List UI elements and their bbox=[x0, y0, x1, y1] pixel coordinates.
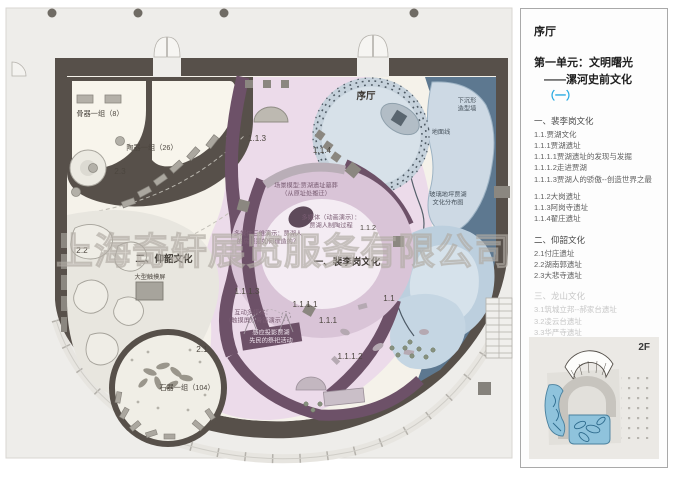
thumbnail-plan bbox=[529, 337, 653, 459]
label-zone-1-1-4: 1.1.4 bbox=[313, 146, 331, 155]
section-title: 三、龙山文化 bbox=[534, 290, 656, 302]
page: 骨器一组（8） 陶器一组（26） 2.3 2.2 二、仰韶文化 大型触摸屏 2.… bbox=[0, 0, 676, 477]
thumb-grid bbox=[621, 375, 649, 439]
section-item: 1.1.3阿岗寺遗址 bbox=[534, 202, 656, 213]
panel-unit-title: 第一单元：文明曙光 ——漯河史前文化（一） bbox=[534, 55, 656, 105]
label-zone-2-3: 2.3 bbox=[114, 167, 125, 176]
label-scene-model: 场景模型:贾湖遗址墓葬 （从原址处搬迁） bbox=[274, 182, 338, 198]
section-item: 2.1付庄遗址 bbox=[534, 248, 656, 259]
panel-hall-title: 序厅 bbox=[534, 23, 656, 39]
info-panel: 序厅 第一单元：文明曙光 ——漯河史前文化（一） 一、裴李岗文化1.1.贾湖文化… bbox=[520, 8, 668, 468]
section-item: 1.1.1.1贾湖遗址的发现与发掘 bbox=[534, 151, 656, 162]
floor-plan: 骨器一组（8） 陶器一组（26） 2.3 2.2 二、仰韶文化 大型触摸屏 2.… bbox=[0, 0, 516, 477]
section-title: 一、裴李岗文化 bbox=[534, 115, 656, 127]
section-item: 1.1.4翟庄遗址 bbox=[534, 213, 656, 224]
touch-screen-box bbox=[136, 282, 163, 300]
label-glass-floor: 玻璃地坪贾湖 文化分布图 bbox=[429, 191, 466, 207]
watermark: 上海奇轩展览服务有限公司 bbox=[56, 221, 518, 275]
panel-section: 二、仰韶文化2.1付庄遗址2.2湖南郭遗址2.3大悲寺遗址 bbox=[534, 234, 656, 282]
label-zone-1-1-1-2: 1.1.1.2 bbox=[337, 352, 362, 361]
label-zone-1-1-3: 1.1.3 bbox=[248, 134, 266, 143]
label-stone-tools: 石器一组（104） bbox=[159, 382, 214, 393]
right-wall-stub bbox=[494, 186, 510, 198]
section-item: 1.1.2大岗遗址 bbox=[534, 191, 656, 202]
section-item: 3.2凌云台遗址 bbox=[534, 316, 656, 327]
label-zone-1-1-1-1: 1.1.1.1 bbox=[292, 300, 317, 309]
unit-subtitle-text: ——漯河史前文化 bbox=[544, 74, 632, 86]
label-ground-line: 地面线 bbox=[432, 126, 451, 135]
section-item: 1.1.1.3贾湖人的骄傲--创造世界之最 bbox=[534, 174, 656, 185]
label-bone-tools: 骨器一组（8） bbox=[76, 108, 123, 119]
label-hall: 序厅 bbox=[356, 88, 375, 102]
label-zone-1-1: 1.1 bbox=[383, 294, 394, 303]
label-zone-1-1-1-3: 1.1.1.3 bbox=[234, 287, 259, 296]
section-item: 3.1筑城立邦--郝家台遗址 bbox=[534, 304, 656, 315]
label-pottery: 陶器一组（26） bbox=[126, 142, 177, 153]
panel-sections: 一、裴李岗文化1.1.贾湖文化1.1.1贾湖遗址1.1.1.1贾湖遗址的发现与发… bbox=[534, 115, 656, 350]
label-zone-1-1-1: 1.1.1 bbox=[319, 316, 337, 325]
label-interactive: 互动多媒体： （触摸屏）骨笛演示 bbox=[225, 309, 281, 325]
unit-title-line2: ——漯河史前文化（一） bbox=[534, 72, 656, 105]
unit-subtitle-number: （一） bbox=[544, 90, 577, 102]
label-sunken-wall: 下沉形 造型墙 bbox=[458, 97, 477, 113]
section-item: 1.1.贾湖文化 bbox=[534, 129, 656, 140]
section-title: 二、仰韶文化 bbox=[534, 234, 656, 246]
section-item: 2.3大悲寺遗址 bbox=[534, 270, 656, 281]
label-zone-2-1: 2.1 bbox=[196, 345, 207, 354]
unit-title-line1: 第一单元：文明曙光 bbox=[534, 55, 656, 72]
section-item: 2.2湖南郭遗址 bbox=[534, 259, 656, 270]
thumb-blue-block bbox=[569, 415, 610, 444]
section-item: 1.1.1.2走进贾湖 bbox=[534, 162, 656, 173]
section-item: 1.1.1贾湖遗址 bbox=[534, 140, 656, 151]
floor-label: 2F bbox=[638, 342, 650, 353]
panel-section: 一、裴李岗文化1.1.贾湖文化1.1.1贾湖遗址1.1.1.1贾湖遗址的发现与发… bbox=[534, 115, 656, 225]
label-projection: 感应投影贾湖 先民的祭祀活动 bbox=[249, 329, 292, 345]
floor-thumbnail: 2F bbox=[529, 337, 659, 459]
